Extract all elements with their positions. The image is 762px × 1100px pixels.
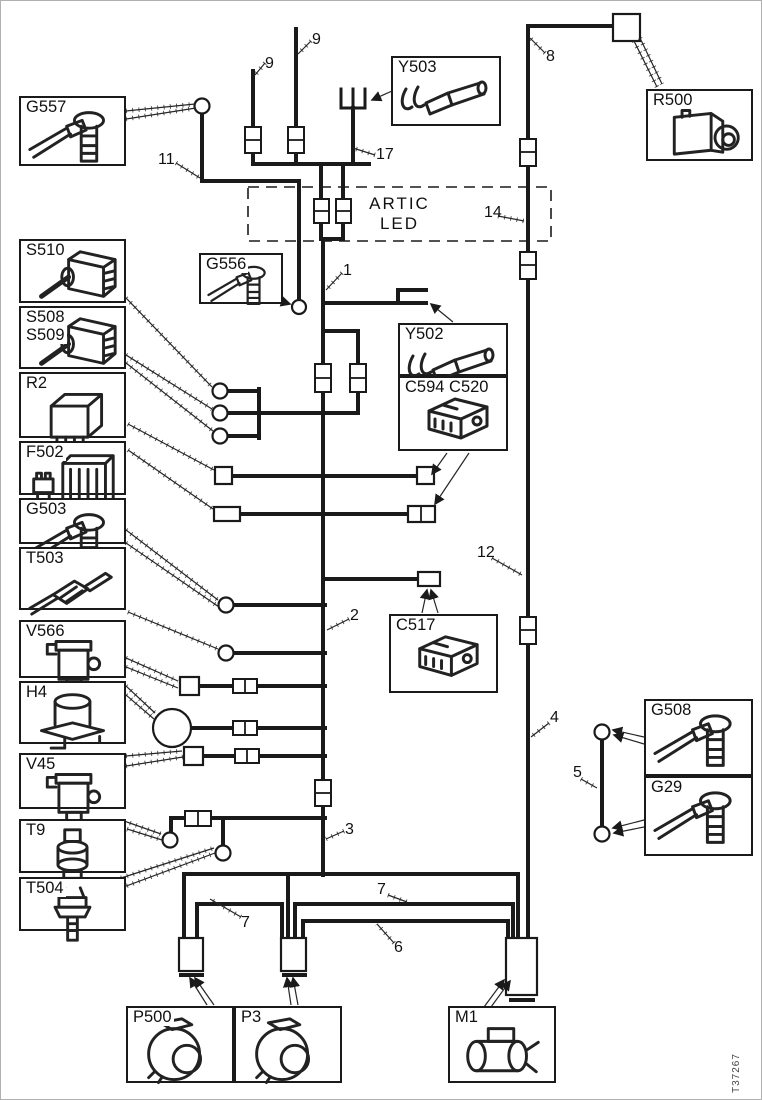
- component-box-t9: T9: [19, 819, 126, 873]
- wire-number-label: 4: [550, 709, 559, 727]
- component-box-c594-c520: C594 C520: [398, 376, 508, 451]
- component-label: T9: [26, 822, 47, 839]
- component-box-p3: P3: [234, 1006, 342, 1083]
- wire-number-label: 9: [265, 55, 274, 73]
- wire-number-label: 12: [477, 544, 495, 562]
- callout-arrows: [190, 91, 644, 1007]
- component-label: Y502: [405, 326, 446, 343]
- wire-number-label: 9: [312, 31, 321, 49]
- component-box-g29: G29: [644, 776, 753, 856]
- component-label: S508: [26, 309, 67, 326]
- component-label: H4: [26, 684, 49, 701]
- component-box-y503: Y503: [391, 56, 501, 126]
- component-box-t503: T503: [19, 547, 126, 610]
- wire-number-label: 3: [345, 821, 354, 839]
- component-box-v566: V566: [19, 620, 126, 678]
- component-label: M1: [455, 1009, 480, 1026]
- component-box-p500: P500: [126, 1006, 234, 1083]
- component-label: R500: [653, 92, 694, 109]
- component-box-m1: M1: [448, 1006, 556, 1083]
- component-box-t504: T504: [19, 877, 126, 931]
- component-label: T504: [26, 880, 66, 897]
- component-box-v45: V45: [19, 753, 126, 809]
- component-label: Y503: [398, 59, 439, 76]
- component-label: S509: [26, 327, 67, 344]
- component-box-g557: G557: [19, 96, 126, 166]
- component-label: V45: [26, 756, 57, 773]
- component-box-g556: G556: [199, 253, 283, 304]
- wire-number-label: 17: [376, 146, 394, 164]
- wire-number-label: 1: [343, 262, 352, 280]
- artic-led-dashed-zone: [248, 187, 551, 241]
- component-box-g508: G508: [644, 699, 753, 776]
- component-label: R2: [26, 375, 49, 392]
- component-label: V566: [26, 623, 67, 640]
- component-box-r500: R500: [646, 89, 753, 161]
- component-label: C594 C520: [405, 379, 490, 396]
- component-box-c517: C517: [389, 614, 498, 693]
- wire-number-label: 5: [573, 764, 582, 782]
- wire-number-label: 8: [546, 48, 555, 66]
- wire-number-label: 2: [350, 607, 359, 625]
- wiring-diagram-canvas: G557 S510 S508 S509 R2 F502 G503 T503 V5…: [0, 0, 762, 1100]
- plug-connectors: [179, 14, 640, 995]
- component-label: G29: [651, 779, 684, 796]
- component-box-g503: G503: [19, 498, 126, 544]
- wire-number-label: 11: [158, 151, 175, 169]
- component-label: P500: [133, 1009, 174, 1026]
- component-label: S510: [26, 242, 67, 259]
- component-label: C517: [396, 617, 437, 634]
- component-box-r2: R2: [19, 372, 126, 438]
- component-label: F502: [26, 444, 66, 461]
- component-box-y502: Y502: [398, 323, 508, 376]
- component-box-h4: H4: [19, 681, 126, 744]
- component-label: G556: [206, 256, 248, 273]
- wire-number-label: 14: [484, 204, 502, 222]
- component-label: G508: [651, 702, 693, 719]
- component-label: G503: [26, 501, 68, 518]
- figure-code: T37267: [731, 1053, 742, 1093]
- wire-number-label: 6: [394, 939, 403, 957]
- component-label: G557: [26, 99, 68, 116]
- component-label: P3: [241, 1009, 263, 1026]
- wire-number-label: 7: [241, 914, 250, 932]
- component-box-s510: S510: [19, 239, 126, 303]
- component-box-f502: F502: [19, 441, 126, 495]
- wire-number-label: 7: [377, 881, 386, 899]
- component-label: T503: [26, 550, 66, 567]
- component-box-s508-s509: S508 S509: [19, 306, 126, 369]
